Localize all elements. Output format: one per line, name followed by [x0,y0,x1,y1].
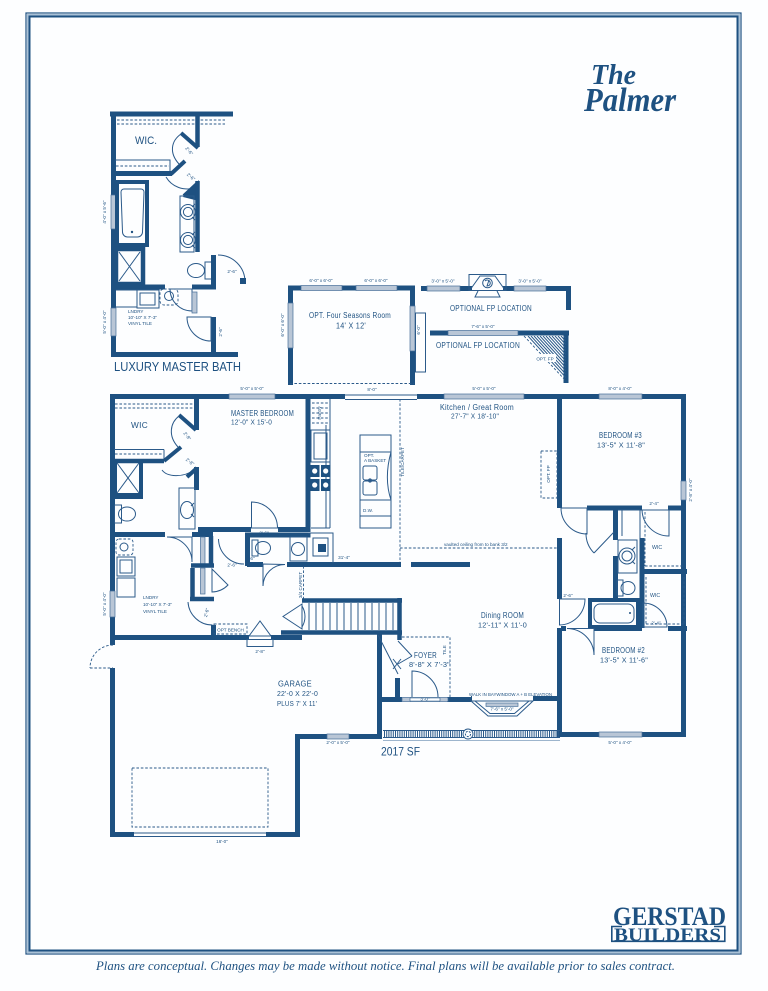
svg-text:vaulted ceiling from to bank 3: vaulted ceiling from to bank 3/2 [444,542,508,547]
svg-text:2'-8": 2'-8" [255,649,265,654]
svg-text:2'-8" x 4'-0": 2'-8" x 4'-0" [688,478,693,502]
svg-text:10'-10" X 7'-3": 10'-10" X 7'-3" [143,602,172,607]
svg-text:LUXURY MASTER BATH: LUXURY MASTER BATH [114,359,241,374]
svg-text:3/4 CARPET: 3/4 CARPET [298,572,303,598]
svg-text:2'-6": 2'-6" [218,327,223,337]
svg-text:Pantry: Pantry [317,406,322,420]
svg-text:BEDROOM #3: BEDROOM #3 [599,431,642,440]
svg-text:OPT. FP: OPT. FP [546,465,551,482]
svg-text:8'-0" x 4'-0": 8'-0" x 4'-0" [608,386,632,391]
svg-text:WIC: WIC [650,593,660,599]
svg-text:12'-11" X 11'-0: 12'-11" X 11'-0 [478,621,527,630]
svg-text:FOYER: FOYER [414,651,437,660]
svg-text:BEDROOM #2: BEDROOM #2 [602,646,645,655]
svg-text:2'-4": 2'-4" [651,621,661,626]
svg-text:6'-0" x 6'-0": 6'-0" x 6'-0" [309,278,333,283]
svg-text:WALK IN BAYWINDOW A + B ELEVAT: WALK IN BAYWINDOW A + B ELEVATION [469,692,552,697]
svg-text:3'-0": 3'-0" [420,697,430,702]
svg-text:6'-0" x 6'-0": 6'-0" x 6'-0" [364,278,388,283]
svg-text:5'-0" x 5'-0": 5'-0" x 5'-0" [240,386,264,391]
svg-text:OPTIONAL FP LOCATION: OPTIONAL FP LOCATION [436,341,520,350]
svg-text:Dining ROOM: Dining ROOM [481,611,524,620]
svg-text:LNDRY: LNDRY [128,309,144,314]
svg-text:4'-0" x 5'-6": 4'-0" x 5'-6" [102,200,107,224]
svg-text:13'-5" X 11'-6": 13'-5" X 11'-6" [600,656,648,665]
svg-text:14' X 12': 14' X 12' [336,322,366,331]
svg-text:TILE/CARPET: TILE/CARPET [400,447,405,477]
svg-text:8'-0": 8'-0" [367,387,377,392]
svg-text:2017 SF: 2017 SF [381,745,420,759]
svg-text:D.W.: D.W. [363,508,373,513]
svg-text:5'-0" x 4'-0": 5'-0" x 4'-0" [102,592,107,616]
svg-text:WIC: WIC [652,545,662,551]
svg-text:31'-4": 31'-4" [338,555,350,560]
svg-text:10'-10" X 7'-3": 10'-10" X 7'-3" [128,315,157,320]
svg-text:5'-0" x 4'-0": 5'-0" x 4'-0" [102,310,107,334]
svg-text:22'-0 X 22'-0: 22'-0 X 22'-0 [277,689,318,698]
svg-text:16'-0": 16'-0" [216,839,228,844]
svg-text:OPT. Four Seasons Room: OPT. Four Seasons Room [309,311,391,320]
svg-text:3'-0" x 5'-0": 3'-0" x 5'-0" [518,279,542,284]
svg-text:2'-6": 2'-6" [563,593,573,598]
svg-text:VINYL TILE: VINYL TILE [128,321,152,326]
svg-text:GARAGE: GARAGE [278,680,312,689]
svg-text:12'-0" X 15'-0: 12'-0" X 15'-0 [231,418,272,427]
svg-text:2'-6": 2'-6" [227,269,237,274]
svg-text:OPTIONAL FP LOCATION: OPTIONAL FP LOCATION [450,304,532,313]
svg-text:7'-6" x 5'-0": 7'-6" x 5'-0" [490,707,514,712]
svg-text:VINYL TILE: VINYL TILE [143,609,167,614]
svg-text:Plans are conceptual. Changes: Plans are conceptual. Changes may be mad… [95,958,675,973]
svg-text:WIC: WIC [131,421,148,430]
svg-text:2'-6": 2'-6" [227,563,237,568]
svg-text:5'-0" x 5'-0": 5'-0" x 5'-0" [472,386,496,391]
svg-text:6'-0": 6'-0" [416,325,421,335]
svg-text:2'-4": 2'-4" [649,501,659,506]
svg-text:OPT. FP: OPT. FP [536,357,553,362]
svg-text:27'-7" X 18'-10": 27'-7" X 18'-10" [451,412,499,421]
svg-text:5'-0" x 4'-0": 5'-0" x 4'-0" [608,740,632,745]
svg-text:TILE: TILE [442,645,447,655]
svg-text:WIC.: WIC. [135,135,157,147]
svg-text:Palmer: Palmer [583,82,677,119]
svg-text:7'-6" x 5'-0": 7'-6" x 5'-0" [471,324,495,329]
svg-text:13'-5" X 11'-8": 13'-5" X 11'-8" [597,441,645,450]
svg-text:2'-0" x 5'-0": 2'-0" x 5'-0" [326,740,350,745]
svg-text:LNDRY: LNDRY [143,595,159,600]
svg-text:OPT BENCH: OPT BENCH [217,628,244,633]
svg-text:BUILDERS: BUILDERS [614,925,721,946]
svg-text:8'-8" X 7'-3": 8'-8" X 7'-3" [409,660,450,669]
svg-text:A BASKET: A BASKET [364,458,386,463]
svg-text:6'-0" x 6'-0": 6'-0" x 6'-0" [280,313,285,337]
svg-text:PLUS 7' X 11': PLUS 7' X 11' [277,699,317,708]
svg-text:3'-0" x 5'-0": 3'-0" x 5'-0" [431,279,455,284]
